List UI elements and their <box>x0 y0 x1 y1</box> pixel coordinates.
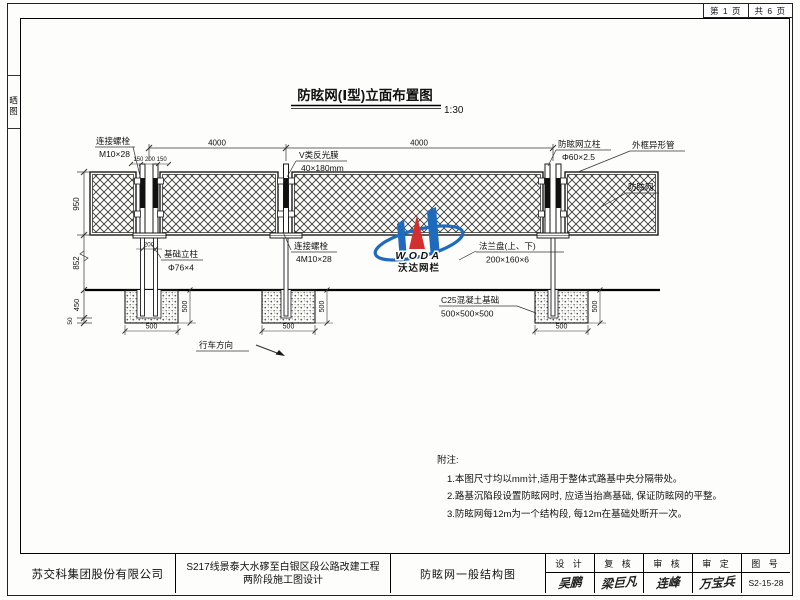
note-item: 2.路基沉陷段设置防眩网时, 应适当抬高基础, 保证防眩网的平整。 <box>437 488 737 506</box>
dim-flange-gap-text: 200 <box>144 242 155 249</box>
drawing-title: 防眩网(Ⅰ型)立面布置图 <box>297 87 433 103</box>
figure-number-cell: 图 号 S2-15-28 <box>741 554 790 593</box>
project-line2: 两阶段施工图设计 <box>243 574 323 587</box>
notes-block: 附注: 1.本图尺寸均以mm计,适用于整体式路基中央分隔带处。 2.路基沉陷段设… <box>437 452 737 523</box>
dim-foundation-d1: 500 <box>182 301 189 313</box>
title-block: 苏交科集团股份有限公司 S217线景泰大水䃎至白银区段公路改建工程 两阶段施工图… <box>20 553 790 593</box>
project-name: S217线景泰大水䃎至白银区段公路改建工程 两阶段施工图设计 <box>175 554 390 593</box>
label-foundation-spec: 500×500×500 <box>441 309 494 319</box>
dim-cushion: 50 <box>67 317 74 325</box>
label-direction: 行车方向 <box>199 340 233 350</box>
company-name: 苏交科集团股份有限公司 <box>20 554 175 593</box>
sign-header: 审 核 <box>644 554 692 573</box>
label-bolt-mid: 连接螺栓 <box>294 241 329 251</box>
label-film: V类反光膜 <box>299 150 339 160</box>
label-film-spec: 40×180mm <box>301 163 344 173</box>
label-net: 防眩网 <box>628 182 654 192</box>
label-bolt-top-spec: M10×28 <box>99 149 130 159</box>
dim-foundation-w3: 500 <box>556 324 568 331</box>
logo-cjk-text: 沃达网栏 <box>398 262 440 274</box>
logo-latin-text: WODA <box>395 250 442 262</box>
label-foundation: C25混凝土基础 <box>441 295 499 305</box>
dim-embed: 450 <box>72 299 81 312</box>
signature: 梁巨凡 <box>601 572 637 592</box>
mesh-panels <box>90 172 658 235</box>
label-post-spec: Φ60×2.5 <box>562 152 595 162</box>
sign-column-check: 复 核 梁巨凡 <box>594 554 643 593</box>
project-line1: S217线景泰大水䃎至白银区段公路改建工程 <box>186 561 379 574</box>
dim-post-below: 852 <box>72 256 81 270</box>
drawing-name: 防眩网一般结构图 <box>390 554 545 593</box>
figure-number: S2-15-28 <box>749 578 784 588</box>
dim-mesh-height: 950 <box>72 197 81 211</box>
note-item: 1.本图尺寸均以mm计,适用于整体式路基中央分隔带处。 <box>437 471 737 489</box>
dim-foundation-d3: 500 <box>592 301 599 313</box>
dim-span-1: 4000 <box>208 139 226 148</box>
sign-column-design: 设 计 吴鹏 <box>545 554 594 593</box>
dim-foundation-w1: 500 <box>146 324 158 331</box>
dim-foundation-d2: 500 <box>319 301 326 313</box>
sign-header: 设 计 <box>546 554 594 573</box>
label-bolt-top: 连接螺栓 <box>96 136 131 146</box>
label-flange: 法兰盘(上、下) <box>479 241 536 251</box>
label-post: 防眩网立柱 <box>558 139 601 149</box>
dim-post-spacing-text: 150 200 150 <box>133 157 167 163</box>
figure-number-header: 图 号 <box>742 554 790 573</box>
label-base-post: 基础立柱 <box>164 249 199 259</box>
sign-header: 审 定 <box>693 554 741 573</box>
dim-foundation-w2: 500 <box>283 324 295 331</box>
signature: 吴鹏 <box>558 573 582 592</box>
signature: 连峰 <box>656 573 680 592</box>
drawing-scale: 1:30 <box>444 105 464 116</box>
sign-column-review: 审 核 连峰 <box>643 554 692 593</box>
sign-column-approve: 审 定 万宝兵 <box>692 554 741 593</box>
note-item: 3.防眩网每12m为一个结构段, 每12m在基础处断开一次。 <box>437 506 737 524</box>
direction-arrowhead <box>276 350 286 356</box>
drawing-sheet: 第 1 页 共 6 页 晒图 防眩网(Ⅰ型)立面布置图 1:30 <box>0 0 800 600</box>
sign-header: 复 核 <box>595 554 643 573</box>
label-base-post-spec: Φ76×4 <box>168 263 194 273</box>
notes-title: 附注: <box>437 452 737 470</box>
signature: 万宝兵 <box>699 572 735 592</box>
dim-span-2: 4000 <box>410 139 428 148</box>
label-frame: 外框异形管 <box>632 140 675 150</box>
dim-foundation-widths <box>123 325 591 335</box>
label-bolt-mid-spec: 4M10×28 <box>296 254 332 264</box>
label-flange-spec: 200×160×6 <box>486 255 529 265</box>
